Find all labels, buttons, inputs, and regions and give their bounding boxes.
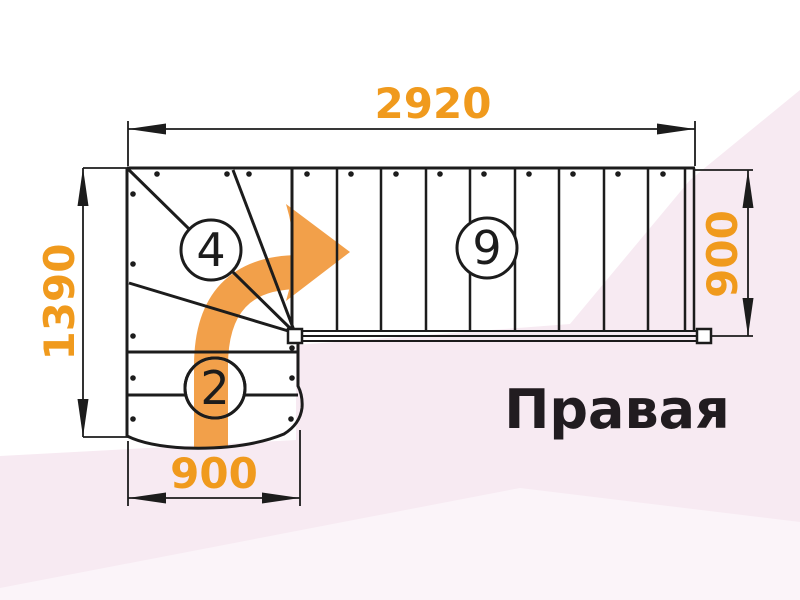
stair-plan-diagram: 4 9 2 2920 1390 900 900 Правая [0,0,800,600]
dimension-label-bottom-width: 900 [170,449,258,498]
bottom-count-label: 2 [200,361,229,415]
page-title: Правая [504,378,730,441]
handrail-post-left [288,329,302,343]
dimension-label-total-length: 2920 [375,79,492,128]
handrail-post-right [697,329,711,343]
dimension-label-left-depth: 1390 [35,244,84,361]
straight-count-label: 9 [472,221,501,275]
handrail [288,329,711,343]
dimension-label-right-width: 900 [698,210,747,298]
winder-count-label: 4 [196,223,225,277]
stair-plan-canvas: 4 9 2 2920 1390 900 900 Правая [0,0,800,600]
